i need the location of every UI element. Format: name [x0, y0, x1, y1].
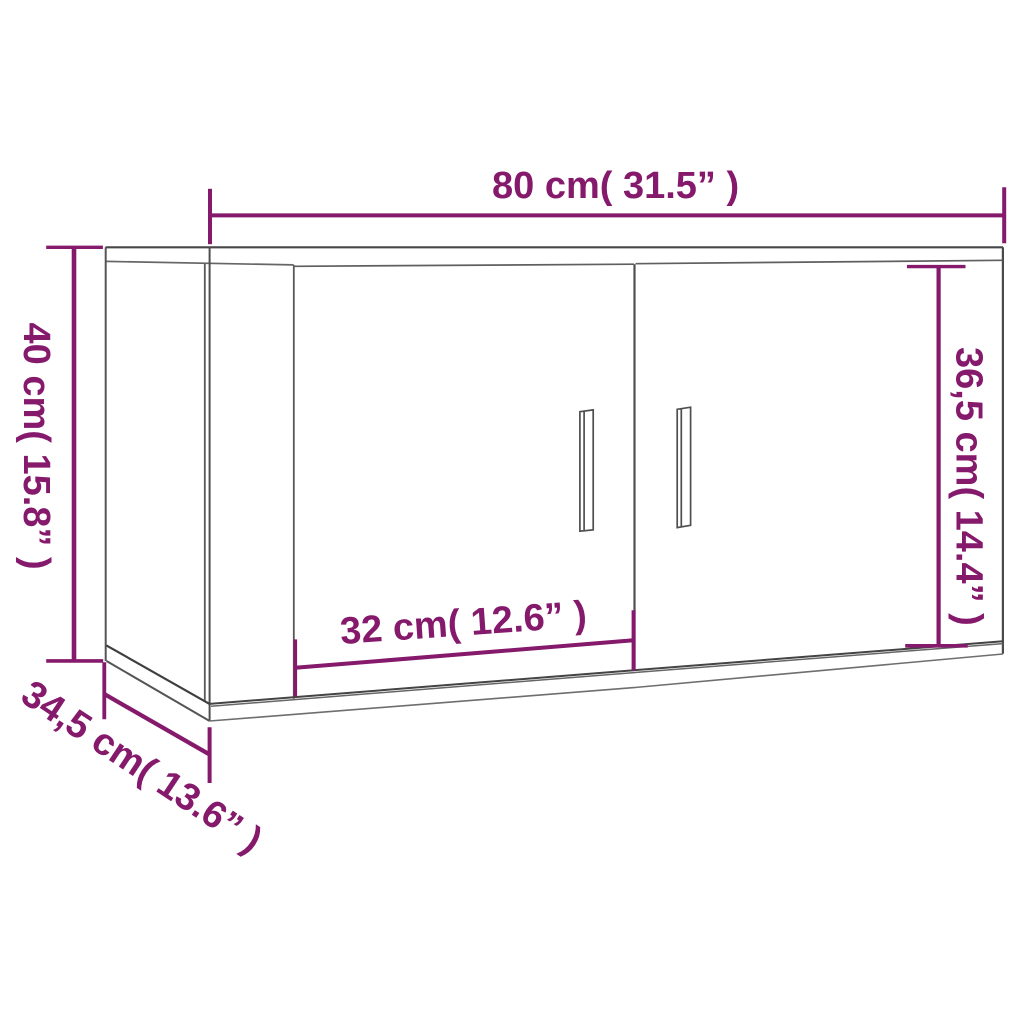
- svg-text:32 cm( 12.6” ): 32 cm( 12.6” ): [339, 594, 588, 653]
- svg-text:40 cm( 15.8” ): 40 cm( 15.8” ): [15, 323, 57, 570]
- svg-text:36,5 cm( 14.4” ): 36,5 cm( 14.4” ): [948, 347, 990, 626]
- svg-text:80 cm( 31.5” ): 80 cm( 31.5” ): [492, 165, 739, 207]
- svg-text:34,5 cm( 13.6” ): 34,5 cm( 13.6” ): [14, 673, 270, 862]
